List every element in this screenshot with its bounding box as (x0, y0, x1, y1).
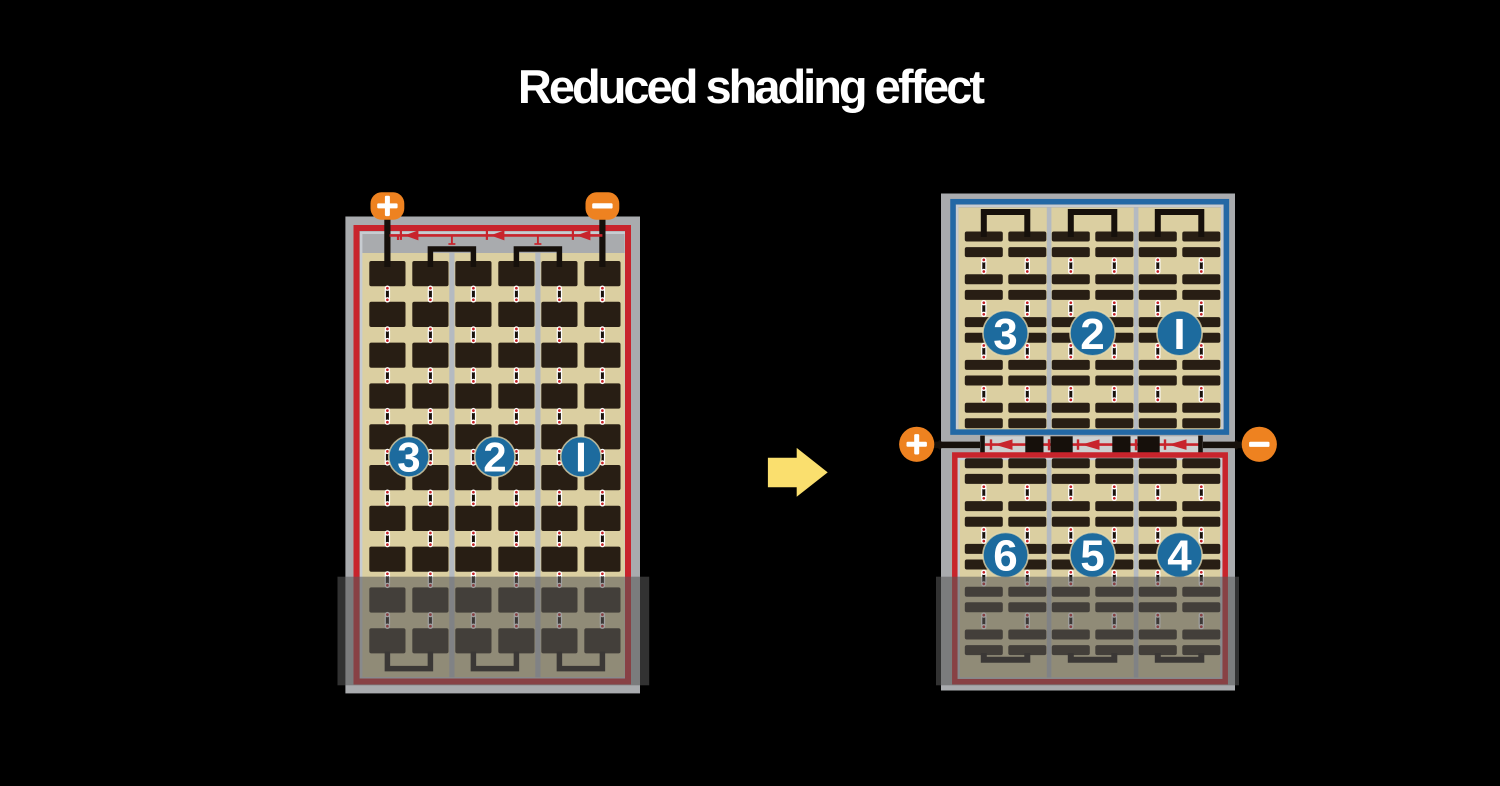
svg-text:3: 3 (397, 434, 420, 481)
svg-text:Reduced shading effect: Reduced shading effect (518, 60, 985, 113)
svg-text:I: I (575, 434, 587, 481)
svg-text:6: 6 (993, 532, 1017, 581)
svg-text:2: 2 (483, 434, 506, 481)
svg-text:3: 3 (993, 310, 1017, 359)
svg-text:5: 5 (1080, 532, 1104, 581)
svg-text:4: 4 (1167, 532, 1192, 581)
svg-text:2: 2 (1080, 310, 1104, 359)
svg-text:I: I (1173, 310, 1185, 359)
